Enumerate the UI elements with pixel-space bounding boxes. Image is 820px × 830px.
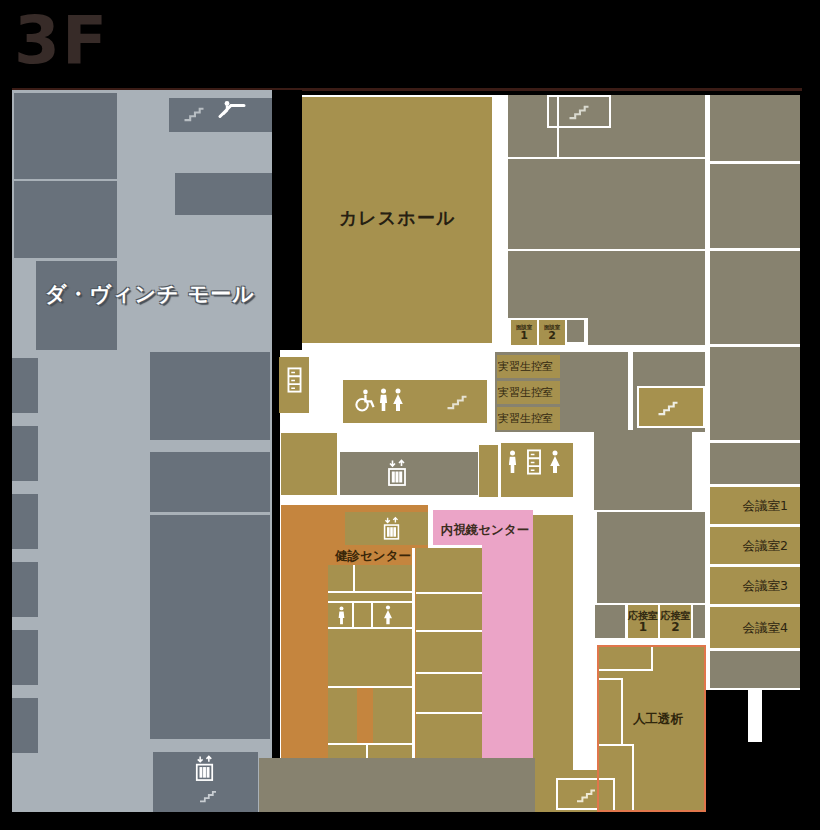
caress-hall-label: カレスホール bbox=[302, 206, 492, 230]
interview-room-number: 1 bbox=[520, 330, 528, 342]
man-icon bbox=[506, 450, 519, 474]
reception-room-label: 応接室 bbox=[661, 610, 691, 621]
woman-icon bbox=[548, 450, 562, 474]
locker-icon bbox=[287, 367, 302, 393]
room-divider bbox=[508, 249, 705, 251]
gray-room-block bbox=[710, 164, 800, 248]
locker-icon bbox=[526, 449, 542, 475]
floor-title: 3F bbox=[14, 2, 109, 79]
room-block bbox=[479, 445, 498, 497]
gray-room-block bbox=[710, 95, 800, 161]
room-divider bbox=[508, 157, 705, 159]
mall-left-tab bbox=[12, 562, 38, 617]
meeting-room-1: 会議室1 bbox=[710, 487, 800, 524]
stairs-icon bbox=[567, 101, 591, 120]
meeting-room-4: 会議室4 bbox=[710, 607, 800, 648]
interview-room-label: 面談室 bbox=[544, 323, 560, 329]
gray-room-block bbox=[710, 347, 800, 440]
gray-room-block bbox=[710, 651, 800, 688]
wall-gap bbox=[272, 90, 302, 350]
room-divider bbox=[599, 669, 653, 671]
trainee-room-1: 実習生控室 bbox=[497, 355, 560, 378]
stairs-icon bbox=[182, 103, 206, 122]
stairs-icon bbox=[656, 397, 680, 416]
trainee-room-3: 実習生控室 bbox=[497, 407, 560, 430]
room-divider bbox=[599, 744, 634, 746]
reception-room-2: 応接室 2 bbox=[660, 605, 691, 638]
gray-room-block bbox=[508, 95, 705, 318]
interview-room-2: 面談室 2 bbox=[539, 320, 565, 345]
room-divider bbox=[632, 746, 634, 810]
gray-room-block bbox=[597, 512, 705, 603]
reception-room-number: 2 bbox=[671, 621, 679, 634]
room-divider bbox=[416, 712, 482, 714]
trainee-room-2: 実習生控室 bbox=[497, 381, 560, 404]
room-divider bbox=[328, 601, 412, 603]
reception-room-number: 1 bbox=[639, 621, 647, 634]
woman-icon bbox=[391, 388, 405, 412]
room-divider bbox=[328, 743, 412, 745]
mall-left-tab bbox=[12, 630, 38, 685]
endoscopy-center-label: 内視鏡センター bbox=[438, 522, 532, 539]
mall-shop-block bbox=[14, 181, 117, 258]
room-divider bbox=[599, 678, 623, 680]
gray-room-block bbox=[595, 605, 625, 638]
mall-shop-block bbox=[150, 452, 270, 512]
meeting-room-3: 会議室3 bbox=[710, 567, 800, 604]
woman-icon bbox=[382, 605, 394, 625]
mall-name-label: ダ・ヴィンチ モール bbox=[40, 280, 260, 308]
man-icon bbox=[377, 388, 390, 412]
room-divider bbox=[613, 780, 615, 810]
room-block bbox=[281, 433, 337, 495]
gray-room-block bbox=[588, 318, 705, 345]
mall-left-tab bbox=[12, 358, 38, 413]
interview-room-label: 面談室 bbox=[516, 323, 532, 329]
mall-left-tab bbox=[12, 698, 38, 753]
room-block bbox=[533, 515, 573, 812]
interview-room-1: 面談室 1 bbox=[511, 320, 537, 345]
room-divider bbox=[651, 647, 653, 671]
endoscopy-corridor bbox=[482, 545, 533, 770]
room-divider bbox=[416, 630, 482, 632]
elevator-icon bbox=[382, 514, 401, 543]
checkup-corridor-bar bbox=[357, 688, 373, 743]
meeting-room-2: 会議室2 bbox=[710, 527, 800, 564]
room-divider bbox=[412, 548, 415, 758]
room-divider bbox=[328, 627, 412, 629]
gray-room-block bbox=[594, 430, 692, 510]
room-divider bbox=[352, 601, 354, 628]
gray-room-block bbox=[259, 758, 535, 812]
stairs-icon bbox=[574, 785, 598, 803]
gray-room-block bbox=[710, 443, 800, 484]
gray-room-block bbox=[710, 251, 800, 344]
room-divider bbox=[353, 565, 355, 591]
endoscopy-room-column bbox=[416, 548, 482, 760]
mall-shop-block bbox=[14, 93, 117, 179]
room-divider bbox=[416, 592, 482, 594]
mall-left-tab bbox=[12, 494, 38, 549]
checkup-center-label: 健診センター bbox=[328, 548, 418, 565]
corridor-stub bbox=[748, 688, 762, 742]
gray-room-block bbox=[567, 320, 584, 342]
mall-shop-block bbox=[150, 352, 270, 440]
stairs-icon bbox=[196, 787, 220, 803]
escalator-icon bbox=[218, 98, 248, 121]
dialysis-label: 人工透析 bbox=[620, 711, 696, 728]
room-divider bbox=[416, 672, 482, 674]
elevator-hall-block bbox=[340, 452, 478, 495]
interview-room-number: 2 bbox=[548, 330, 556, 342]
man-icon bbox=[336, 606, 347, 625]
reception-room-label: 応接室 bbox=[628, 610, 658, 621]
gray-room-block bbox=[693, 605, 705, 638]
elevator-icon bbox=[386, 456, 408, 490]
elevator-icon bbox=[193, 755, 216, 782]
room-divider bbox=[328, 591, 412, 593]
mall-shop-block bbox=[150, 515, 270, 739]
mall-left-tab bbox=[12, 426, 38, 481]
stairs-icon bbox=[445, 391, 469, 410]
reception-room-1: 応接室 1 bbox=[628, 605, 658, 638]
room-divider bbox=[366, 743, 368, 758]
floor-map-3f: 3F ダ・ヴィンチ モール カレスホール 面談室 1 面談室 2 bbox=[0, 0, 820, 830]
room-divider bbox=[371, 601, 373, 628]
wheelchair-icon bbox=[354, 389, 375, 412]
